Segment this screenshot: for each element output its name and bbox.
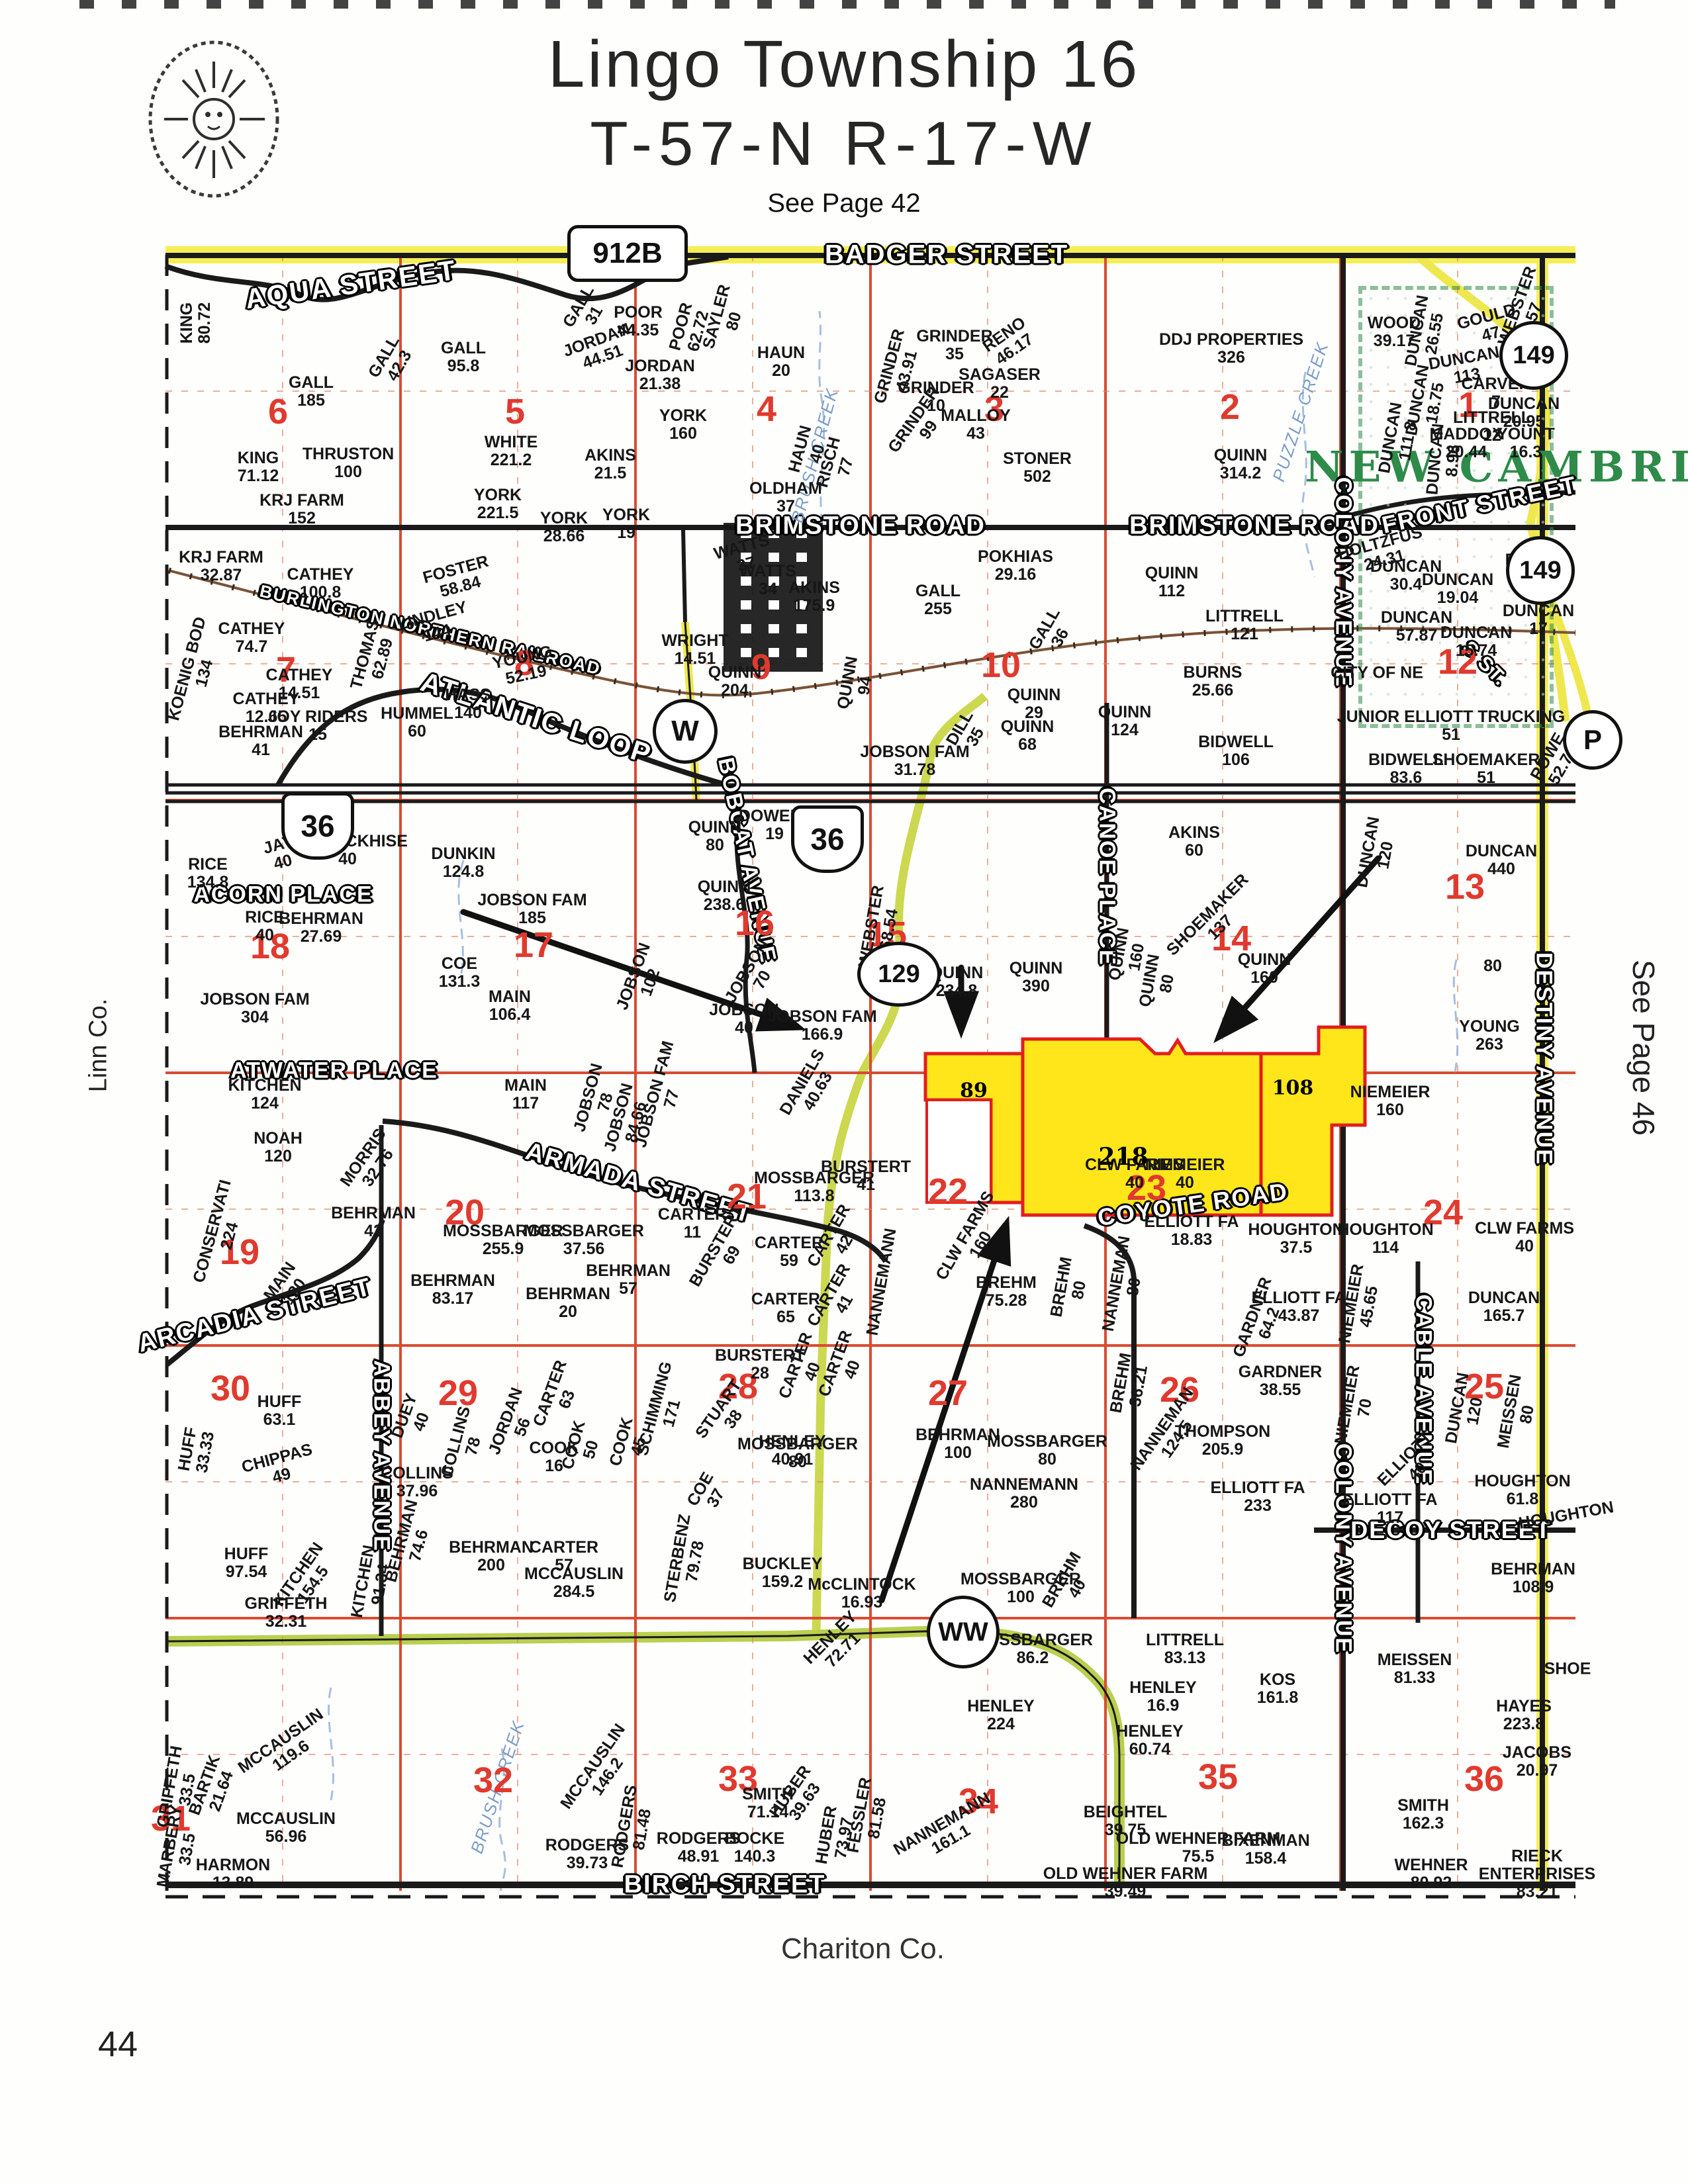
- parcel-label: ELLIOTT FA 233: [1210, 1479, 1305, 1515]
- parcel-label: ELLIOTT FA 43.87: [1251, 1289, 1346, 1325]
- parcel-label: RIECK ENTERPRISES 83.21: [1462, 1848, 1613, 1901]
- highlighted-parcel-number: 108: [1272, 1077, 1314, 1100]
- road-label: BRIMSTONE ROAD: [735, 512, 986, 541]
- parcel-label: BREHM 75.28: [976, 1274, 1037, 1310]
- parcel-label: BURNS 25.66: [1184, 664, 1243, 700]
- parcel-label: WRIGHT 14.51: [661, 632, 728, 668]
- highway-sign-149: 149: [1506, 536, 1575, 605]
- section-number: 6: [268, 391, 288, 432]
- parcel-label: QUINN 204: [708, 664, 762, 700]
- parcel-label: OLDHAM 37: [749, 480, 822, 516]
- parcel-label: OLD WEHNER FARM 39.49: [1043, 1865, 1208, 1901]
- parcel-label: GALL 95.8: [441, 340, 486, 375]
- parcel-label: 80: [1483, 958, 1502, 976]
- linn-county-label: Linn Co.: [84, 999, 113, 1093]
- parcel-label: MCCAUSLIN 56.96: [236, 1810, 336, 1846]
- parcel-label: GRINDER 35: [916, 328, 992, 363]
- parcel-label: HUFF 33.33: [175, 1426, 218, 1475]
- parcel-label: DUNCAN 17: [1503, 602, 1574, 638]
- parcel-label: WEHNER 80.92: [1394, 1856, 1468, 1892]
- highway-sign-p: P: [1563, 710, 1622, 770]
- parcel-label: BEHRMAN 83.17: [410, 1272, 495, 1308]
- section-number: 2: [1220, 387, 1240, 428]
- parcel-label: BEHRMAN 42: [331, 1205, 416, 1240]
- parcel-label: MAIN 106.4: [489, 988, 531, 1024]
- road-label: COLONY AVENUE: [1331, 1443, 1356, 1654]
- parcel-label: LITTRELL 83.13: [1146, 1631, 1224, 1667]
- highway-sign-129: 129: [857, 942, 941, 1007]
- parcel-label: YORK 19: [602, 506, 650, 542]
- parcel-label: YORK 160: [659, 407, 707, 443]
- parcel-label: JACOBS 20.97: [1503, 1744, 1571, 1780]
- parcel-label: MAIN 117: [504, 1077, 547, 1113]
- parcel-label: AKINS 60: [1168, 824, 1220, 860]
- page-number: 44: [98, 2024, 138, 2065]
- highway-sign-36: 36: [791, 805, 864, 873]
- parcel-label: HAUN 20: [757, 344, 805, 380]
- parcel-label: KOS 161.8: [1257, 1671, 1299, 1707]
- parcel-label: CATHEY 100.8: [287, 566, 354, 602]
- parcel-label: GALL 185: [289, 374, 334, 410]
- parcel-label: STONER 502: [1003, 450, 1072, 486]
- parcel-label: COE 131.3: [439, 955, 481, 991]
- parcel-label: SHOE: [1544, 1661, 1591, 1678]
- parcel-label: DUNCAN 165.7: [1468, 1289, 1540, 1325]
- creek-path: [329, 1688, 334, 1800]
- parcel-label: McCLINTOCK 16.93: [808, 1576, 915, 1612]
- parcel-label: YORK 221.5: [474, 486, 522, 522]
- parcel-label: QUINN 314.2: [1214, 447, 1268, 482]
- parcel-label: DUNKIN 124.8: [431, 845, 495, 881]
- parcel-label: JUNIOR ELLIOTT TRUCKING 51: [1337, 708, 1565, 744]
- section-number: 35: [1198, 1756, 1238, 1797]
- parcel-label: DUNCAN 8.96: [1423, 423, 1465, 498]
- section-number: 4: [757, 388, 776, 430]
- parcel-label: ELLIOTT FA 117: [1342, 1491, 1437, 1527]
- parcel-label: NANNEMANN 280: [970, 1476, 1078, 1512]
- parcel-label: JOBSON FAM 304: [200, 991, 309, 1026]
- parcel-label: RICE 134.8: [187, 856, 229, 891]
- parcel-label: BIXENMAN 158.4: [1221, 1832, 1309, 1868]
- road-label: BADGER STREET: [825, 240, 1068, 270]
- parcel-label: POKHIAS 29.16: [978, 548, 1053, 584]
- parcel-label: MEISSEN 81.33: [1378, 1651, 1452, 1687]
- parcel-label: KITCHEN 124: [228, 1077, 301, 1113]
- section-number: 17: [514, 925, 553, 966]
- parcel-label: CITY OF NE: [1331, 664, 1423, 682]
- parcel-label: MOSSBARGER 80: [987, 1433, 1107, 1469]
- parcel-label: BIDWELL 106: [1198, 733, 1274, 769]
- section-number: 5: [505, 391, 525, 432]
- parcel-label: MALLOY 43: [941, 407, 1011, 443]
- parcel-label: DUNCAN 15.74: [1440, 624, 1512, 660]
- parcel-label: BURSTERT 41: [821, 1158, 911, 1194]
- section-number: 30: [211, 1368, 250, 1409]
- highway-sign-w: W: [653, 699, 718, 764]
- parcel-label: BOCKE 140.3: [725, 1830, 784, 1866]
- parcel-label: JOBSON FAM 31.78: [860, 743, 969, 779]
- parcel-label: HOUGHTON 61.8: [1474, 1473, 1570, 1508]
- parcel-label: HUMMEL 60: [381, 705, 453, 741]
- road-label: DESTINY AVENUE: [1531, 952, 1557, 1165]
- parcel-label: YOUNT 16.3: [1497, 426, 1555, 461]
- parcel-label: KING 71.12: [238, 449, 279, 485]
- parcel-label: YOUNG 263: [1459, 1018, 1520, 1054]
- parcel-label: HUFF 63.1: [258, 1393, 302, 1429]
- parcel-label: THRUSTON 100: [303, 445, 394, 481]
- section-number: 10: [981, 645, 1021, 686]
- parcel-label: BEHRMAN 57: [586, 1262, 671, 1298]
- see-page-46-label: See Page 46: [1626, 960, 1662, 1136]
- parcel-label: CATHEY 74.7: [218, 620, 285, 656]
- parcel-label: MOSSBARGER 37.56: [524, 1222, 644, 1258]
- road-path: [683, 529, 685, 622]
- parcel-label: HAYES 223.8: [1496, 1698, 1552, 1733]
- parcel-label: BEHRMAN 27.69: [279, 910, 363, 946]
- highway-sign-36: 36: [281, 792, 354, 860]
- parcel-label: HENLEY 16.9: [1129, 1679, 1196, 1715]
- parcel-label: SAGASER 22: [959, 366, 1041, 402]
- parcel-label: HENLEY 60.74: [1116, 1723, 1183, 1758]
- road-label: COLONY AVENUE: [1331, 477, 1356, 688]
- parcel-label: BURSTERT 28: [715, 1347, 805, 1383]
- parcel-label: KRJ FARM 152: [259, 492, 344, 527]
- parcel-label: HENLEY 224: [967, 1698, 1034, 1733]
- parcel-label: BEHRMAN 108.9: [1491, 1561, 1575, 1596]
- parcel-label: QUINN 238.6: [698, 878, 751, 914]
- parcel-label: BEHRMAN 200: [449, 1539, 534, 1574]
- highway-sign-912b: 912B: [567, 225, 688, 282]
- parcel-label: AKINS 21.5: [585, 447, 636, 482]
- parcel-label: QUINN 124: [1098, 704, 1152, 739]
- chariton-county-label: Chariton Co.: [781, 1933, 945, 1966]
- parcel-label: DUNCAN 440: [1466, 842, 1537, 878]
- parcel-label: KRJ FARM 32.87: [179, 549, 263, 584]
- parcel-label: QUINN 68: [1001, 718, 1055, 754]
- highlighted-parcel-number: 218: [1098, 1143, 1148, 1171]
- road-label: ABBEY AVENUE: [369, 1360, 395, 1552]
- section-number: 36: [1464, 1758, 1504, 1799]
- parcel-label: WATTS 34: [739, 563, 796, 598]
- parcel-label: JOBSON FAM 166.9: [767, 1008, 876, 1044]
- parcel-label: JORDAN 21.38: [625, 357, 695, 393]
- parcel-label: QUINN 29: [1008, 686, 1061, 722]
- section-number: 22: [928, 1171, 968, 1212]
- highway-sign-ww: WW: [927, 1596, 1000, 1668]
- parcel-label: HARMON 13.89: [196, 1856, 271, 1892]
- parcel-label: QUINN 390: [1009, 960, 1063, 995]
- parcel-label: JOY RIDERS 15: [268, 708, 368, 744]
- parcel-label: GALL 255: [915, 582, 961, 618]
- parcel-label: QUINN 112: [1145, 565, 1199, 600]
- highway-sign-149: 149: [1499, 321, 1568, 390]
- parcel-label: YORK 28.66: [540, 510, 588, 545]
- plat-map-page: Lingo Township 16 T-57-N R-17-W See Page…: [0, 0, 1688, 2184]
- parcel-label: DUNCAN 19.04: [1422, 571, 1493, 607]
- parcel-label: MOSSBARGER 80: [737, 1435, 858, 1471]
- parcel-label: MCCAUSLIN 284.5: [524, 1565, 624, 1601]
- section-number: 32: [473, 1760, 513, 1801]
- section-number: 27: [928, 1373, 968, 1414]
- parcel-label: SHOEMAKER 51: [1432, 751, 1540, 787]
- parcel-label: KING 80.72: [178, 302, 214, 344]
- parcel-label: QUINN 160: [1238, 951, 1291, 987]
- parcel-label: JOBSON FAM 185: [477, 891, 586, 927]
- parcel-label: NIEMEIER 160: [1350, 1083, 1430, 1119]
- parcel-label: DDJ PROPERTIES 326: [1159, 331, 1303, 367]
- parcel-label: QUINN 80: [688, 819, 742, 854]
- township-map: NEW CAMBRIAAQUA STREETBADGER STREETBRIMS…: [0, 0, 1688, 2184]
- highlighted-parcel-number: 89: [960, 1079, 988, 1103]
- creek-path: [1454, 960, 1457, 1072]
- parcel-label: LITTRELL 121: [1205, 608, 1284, 643]
- parcel-label: GARDNER 38.55: [1239, 1363, 1322, 1399]
- parcel-label: WHITE 221.2: [485, 433, 538, 469]
- parcel-label: HOUGHTON 37.5: [1248, 1221, 1344, 1257]
- parcel-label: HUFF 97.54: [224, 1545, 269, 1581]
- parcel-label: ELLIOTT FA 18.83: [1144, 1213, 1239, 1249]
- road-label: BIRCH STREET: [624, 1871, 826, 1899]
- parcel-label: CLW FARMS 40: [1475, 1220, 1574, 1255]
- parcel-label: HOUGHTON 114: [1337, 1221, 1433, 1257]
- parcel-label: SMITH 162.3: [1397, 1797, 1449, 1833]
- parcel-label: NOAH 120: [254, 1130, 303, 1165]
